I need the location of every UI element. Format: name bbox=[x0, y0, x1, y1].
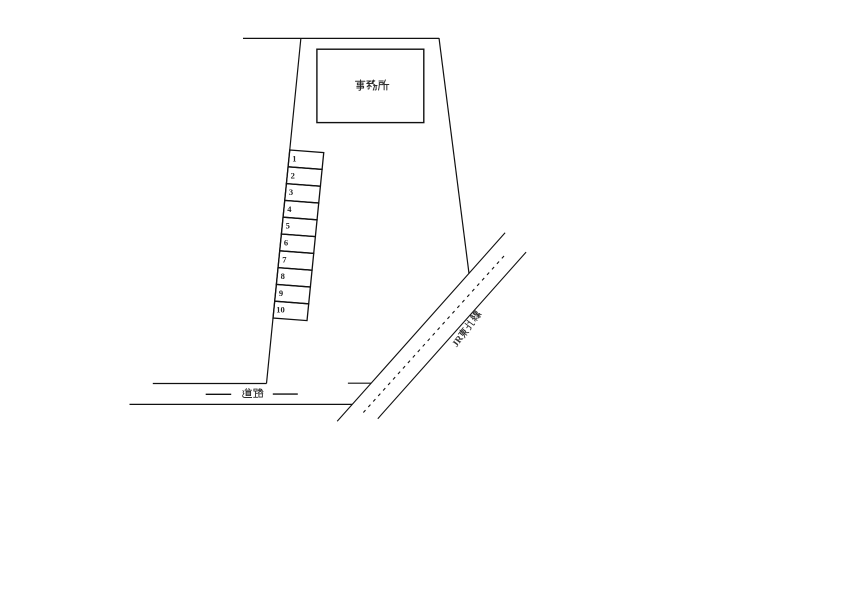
svg-text:9: 9 bbox=[279, 288, 283, 298]
svg-text:10: 10 bbox=[276, 305, 285, 315]
svg-text:JR: JR bbox=[451, 334, 466, 349]
svg-text:8: 8 bbox=[281, 271, 285, 281]
svg-text:3: 3 bbox=[289, 187, 293, 197]
svg-text:6: 6 bbox=[284, 238, 288, 248]
svg-text:1: 1 bbox=[292, 154, 296, 164]
svg-text:2: 2 bbox=[291, 170, 295, 180]
svg-text:7: 7 bbox=[282, 254, 287, 264]
svg-text:4: 4 bbox=[287, 204, 292, 214]
svg-text:5: 5 bbox=[286, 221, 290, 231]
